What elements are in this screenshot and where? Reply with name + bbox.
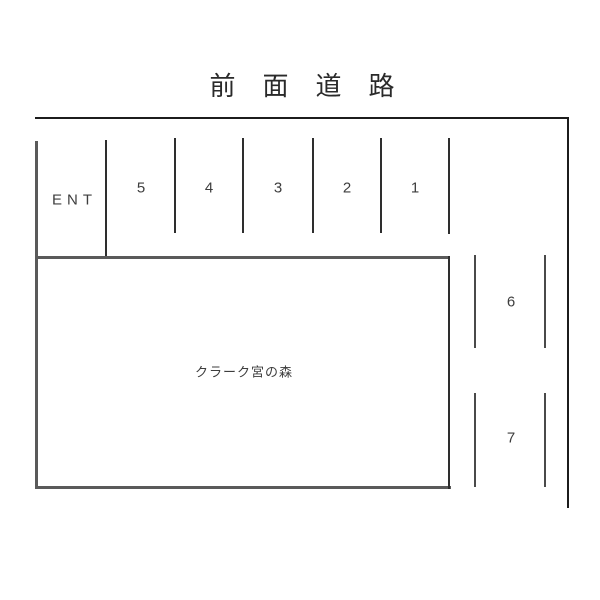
front-road-title: 前面道路	[35, 66, 569, 103]
entrance-label: ENT	[47, 192, 97, 209]
space-divider-line-2	[380, 138, 382, 233]
parking-space-1-label: 1	[411, 180, 419, 197]
space-6-left-line	[474, 255, 476, 348]
space-divider-line-5	[174, 138, 176, 233]
parking-lot-diagram: 前面道路 ENT 5 4 3 2 1 クラーク宮の森 6 7	[0, 0, 600, 600]
parking-space-7-label: 7	[507, 430, 515, 447]
parking-space-2-label: 2	[343, 180, 351, 197]
parking-space-3-label: 3	[274, 180, 282, 197]
parking-space-4-label: 4	[205, 180, 213, 197]
space-7-left-line	[474, 393, 476, 487]
lot-left-boundary-line	[35, 141, 38, 489]
lot-right-boundary-line	[567, 117, 569, 508]
space-divider-line-3	[312, 138, 314, 233]
space-divider-line-1	[448, 138, 450, 234]
building-top-line	[35, 256, 450, 259]
parking-space-5-label: 5	[137, 180, 145, 197]
space-divider-line-4	[242, 138, 244, 233]
building-name-label: クラーク宮の森	[195, 362, 293, 381]
space-6-right-line	[544, 255, 546, 348]
parking-space-6-label: 6	[507, 294, 515, 311]
entrance-divider-line	[105, 140, 107, 258]
space-7-right-line	[544, 393, 546, 487]
road-boundary-line	[35, 117, 569, 119]
building-bottom-line	[35, 486, 451, 489]
building-right-line	[448, 256, 450, 489]
